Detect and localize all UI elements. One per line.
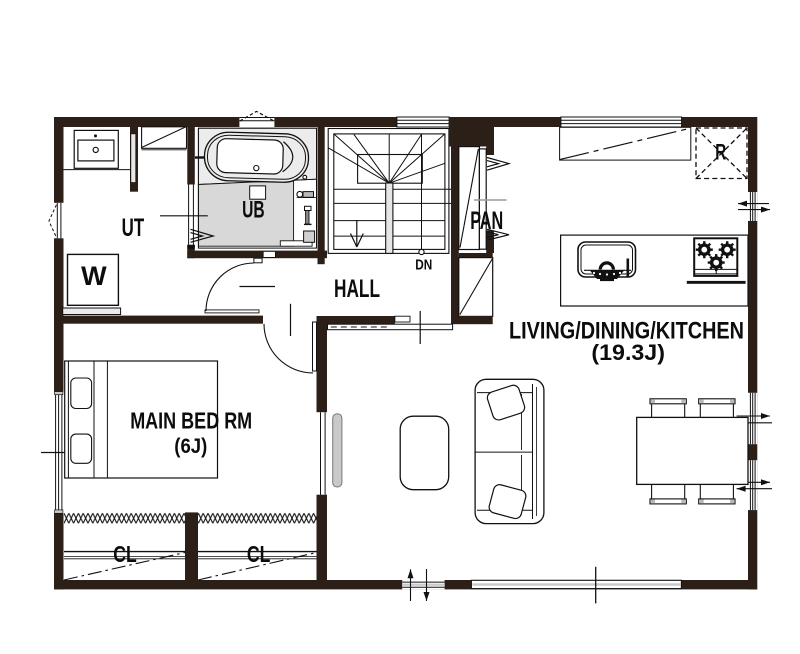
svg-text:MAIN BED RM: MAIN BED RM	[130, 407, 252, 433]
svg-text:DN: DN	[415, 257, 432, 274]
svg-text:W: W	[81, 261, 107, 291]
svg-text:(6J): (6J)	[174, 435, 207, 458]
svg-text:CL: CL	[247, 541, 271, 567]
svg-text:R: R	[715, 140, 726, 165]
svg-text:(19.3J): (19.3J)	[591, 340, 665, 365]
svg-text:CL: CL	[113, 541, 137, 567]
svg-text:HALL: HALL	[334, 275, 380, 303]
svg-text:PAN: PAN	[470, 207, 503, 235]
svg-text:UT: UT	[122, 214, 145, 242]
svg-text:UB: UB	[242, 197, 265, 224]
